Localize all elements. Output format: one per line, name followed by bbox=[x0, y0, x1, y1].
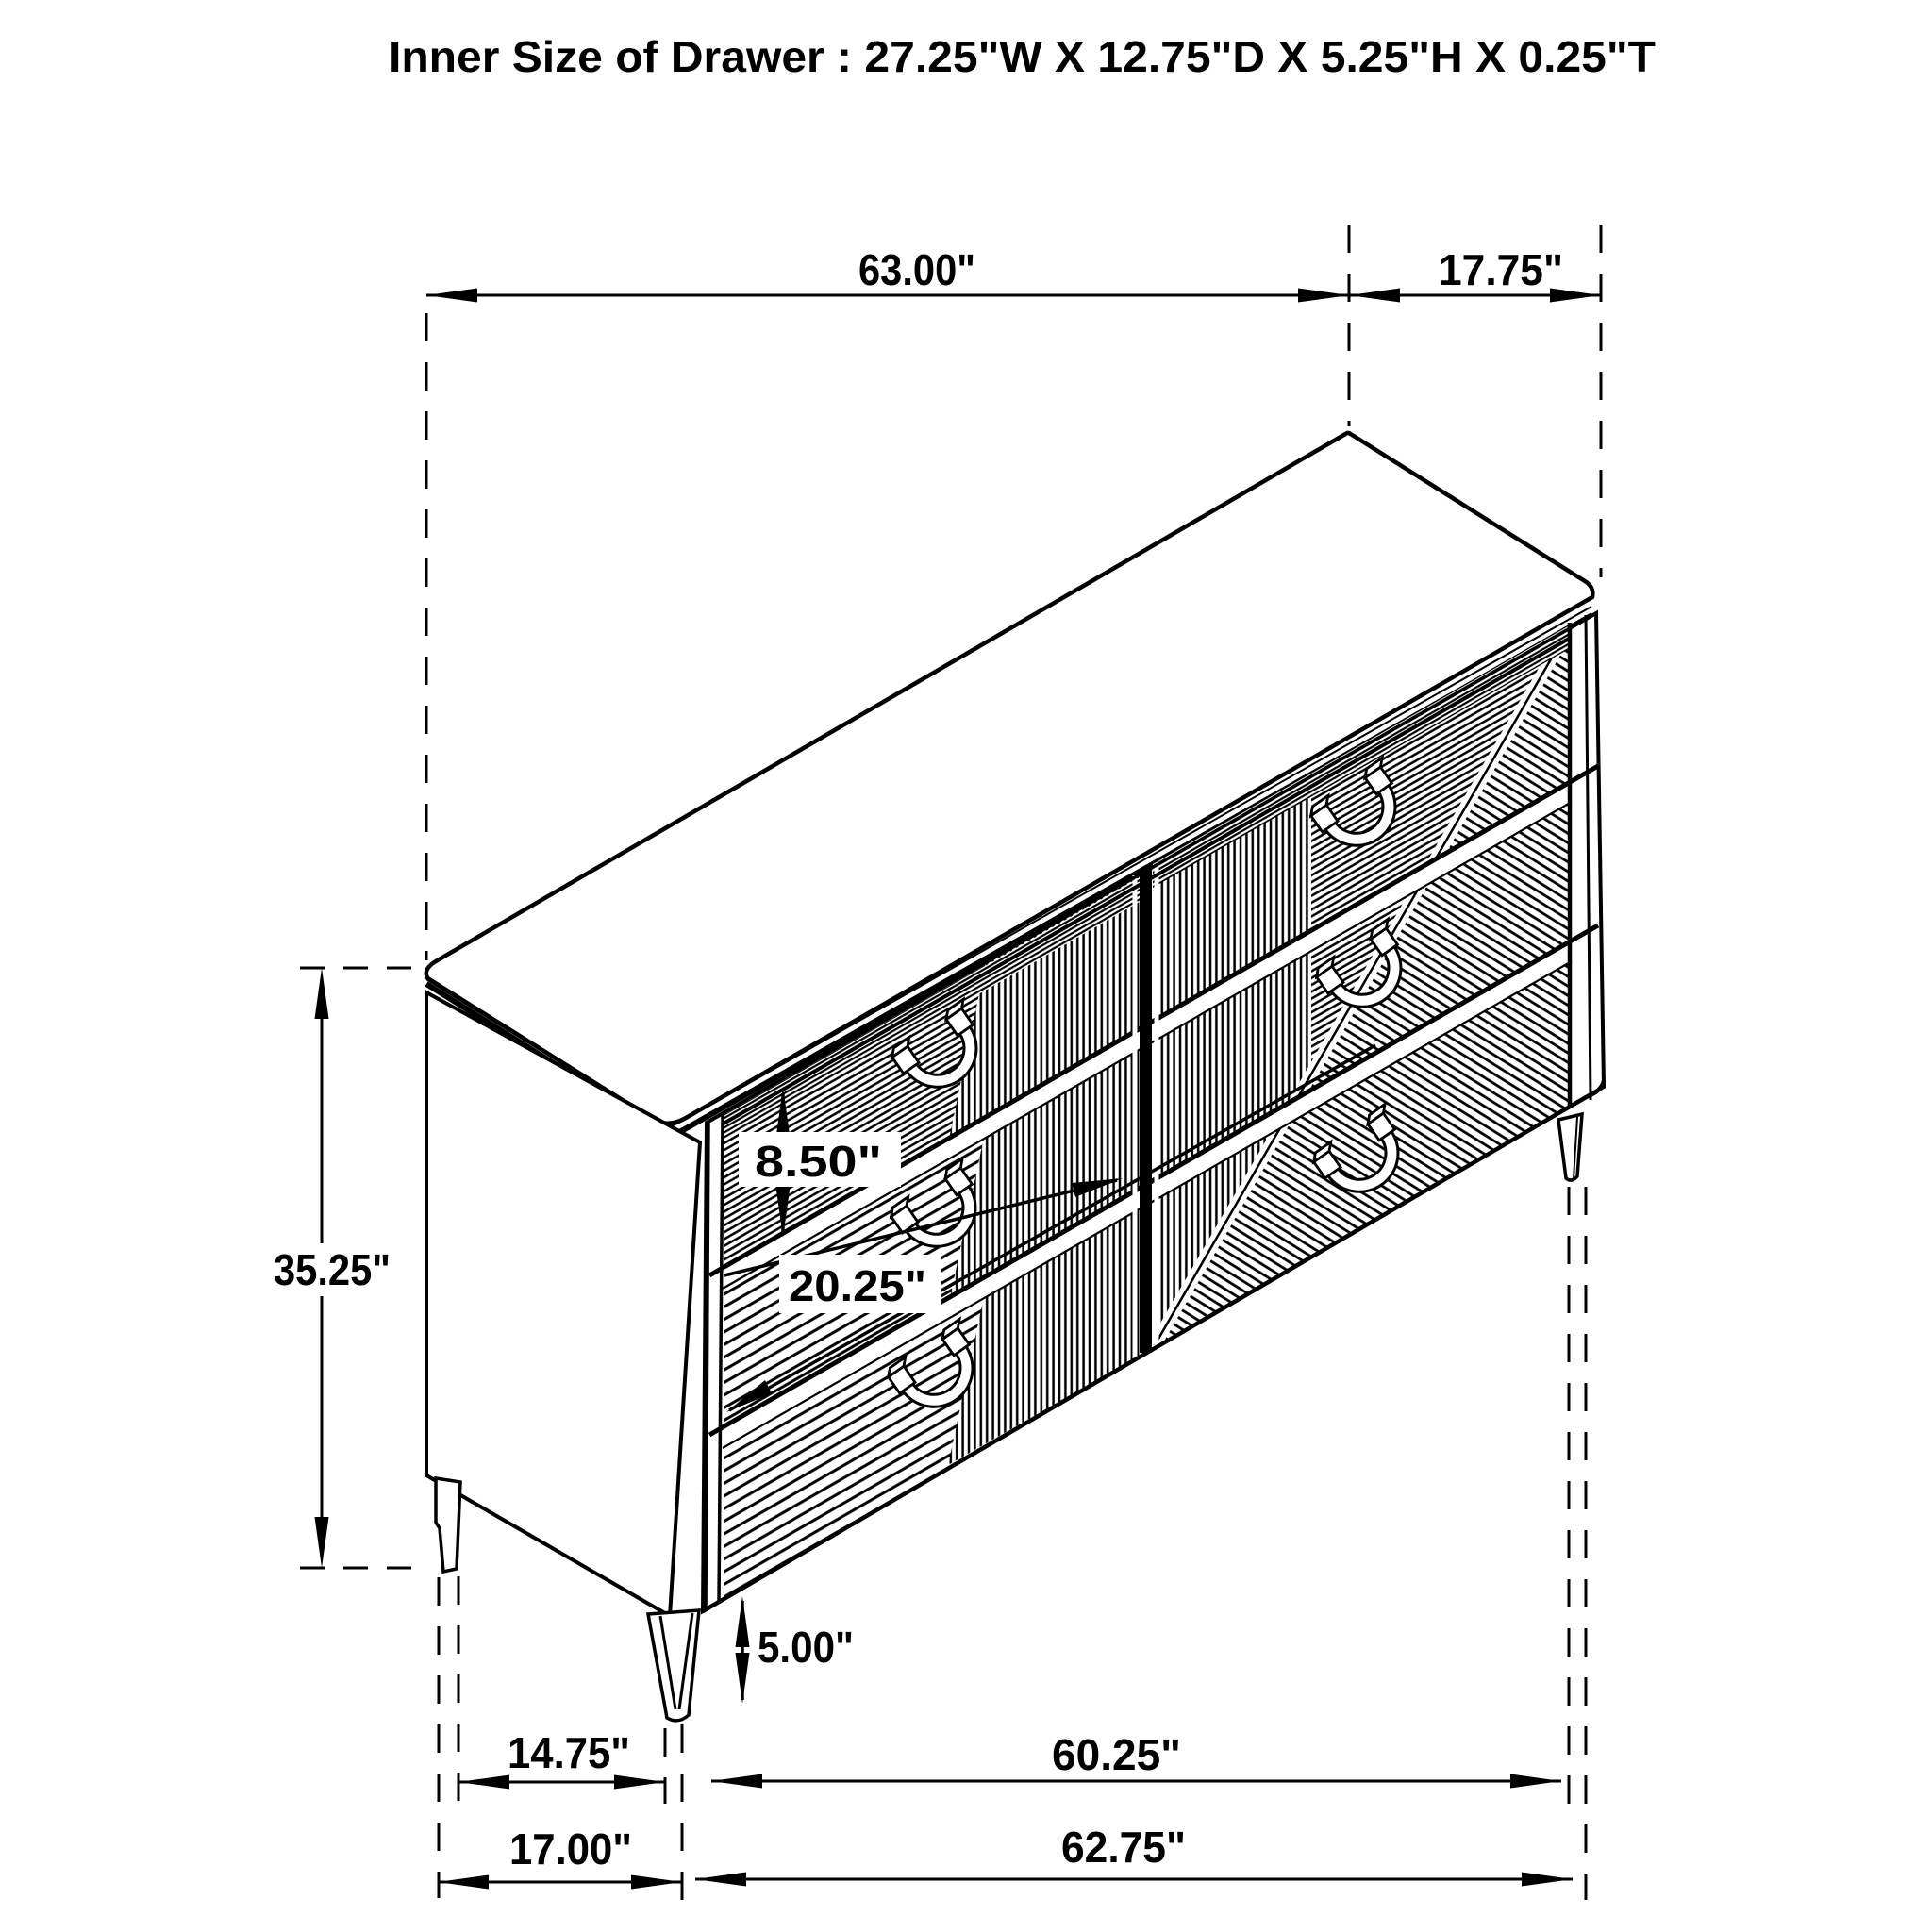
svg-text:14.75": 14.75" bbox=[508, 1728, 630, 1777]
svg-text:63.00": 63.00" bbox=[858, 245, 975, 294]
svg-text:8.50": 8.50" bbox=[755, 1137, 882, 1186]
svg-text:17.00": 17.00" bbox=[509, 1824, 632, 1874]
svg-text:35.25": 35.25" bbox=[274, 1245, 391, 1294]
svg-text:62.75": 62.75" bbox=[1061, 1823, 1186, 1872]
svg-text:20.25": 20.25" bbox=[789, 1261, 926, 1310]
svg-text:Inner Size of Drawer : 27.25"W: Inner Size of Drawer : 27.25"W X 12.75"D… bbox=[389, 32, 1656, 81]
svg-text:60.25": 60.25" bbox=[1052, 1730, 1181, 1779]
svg-text:17.75": 17.75" bbox=[1439, 245, 1563, 294]
svg-text:5.00": 5.00" bbox=[758, 1623, 854, 1672]
